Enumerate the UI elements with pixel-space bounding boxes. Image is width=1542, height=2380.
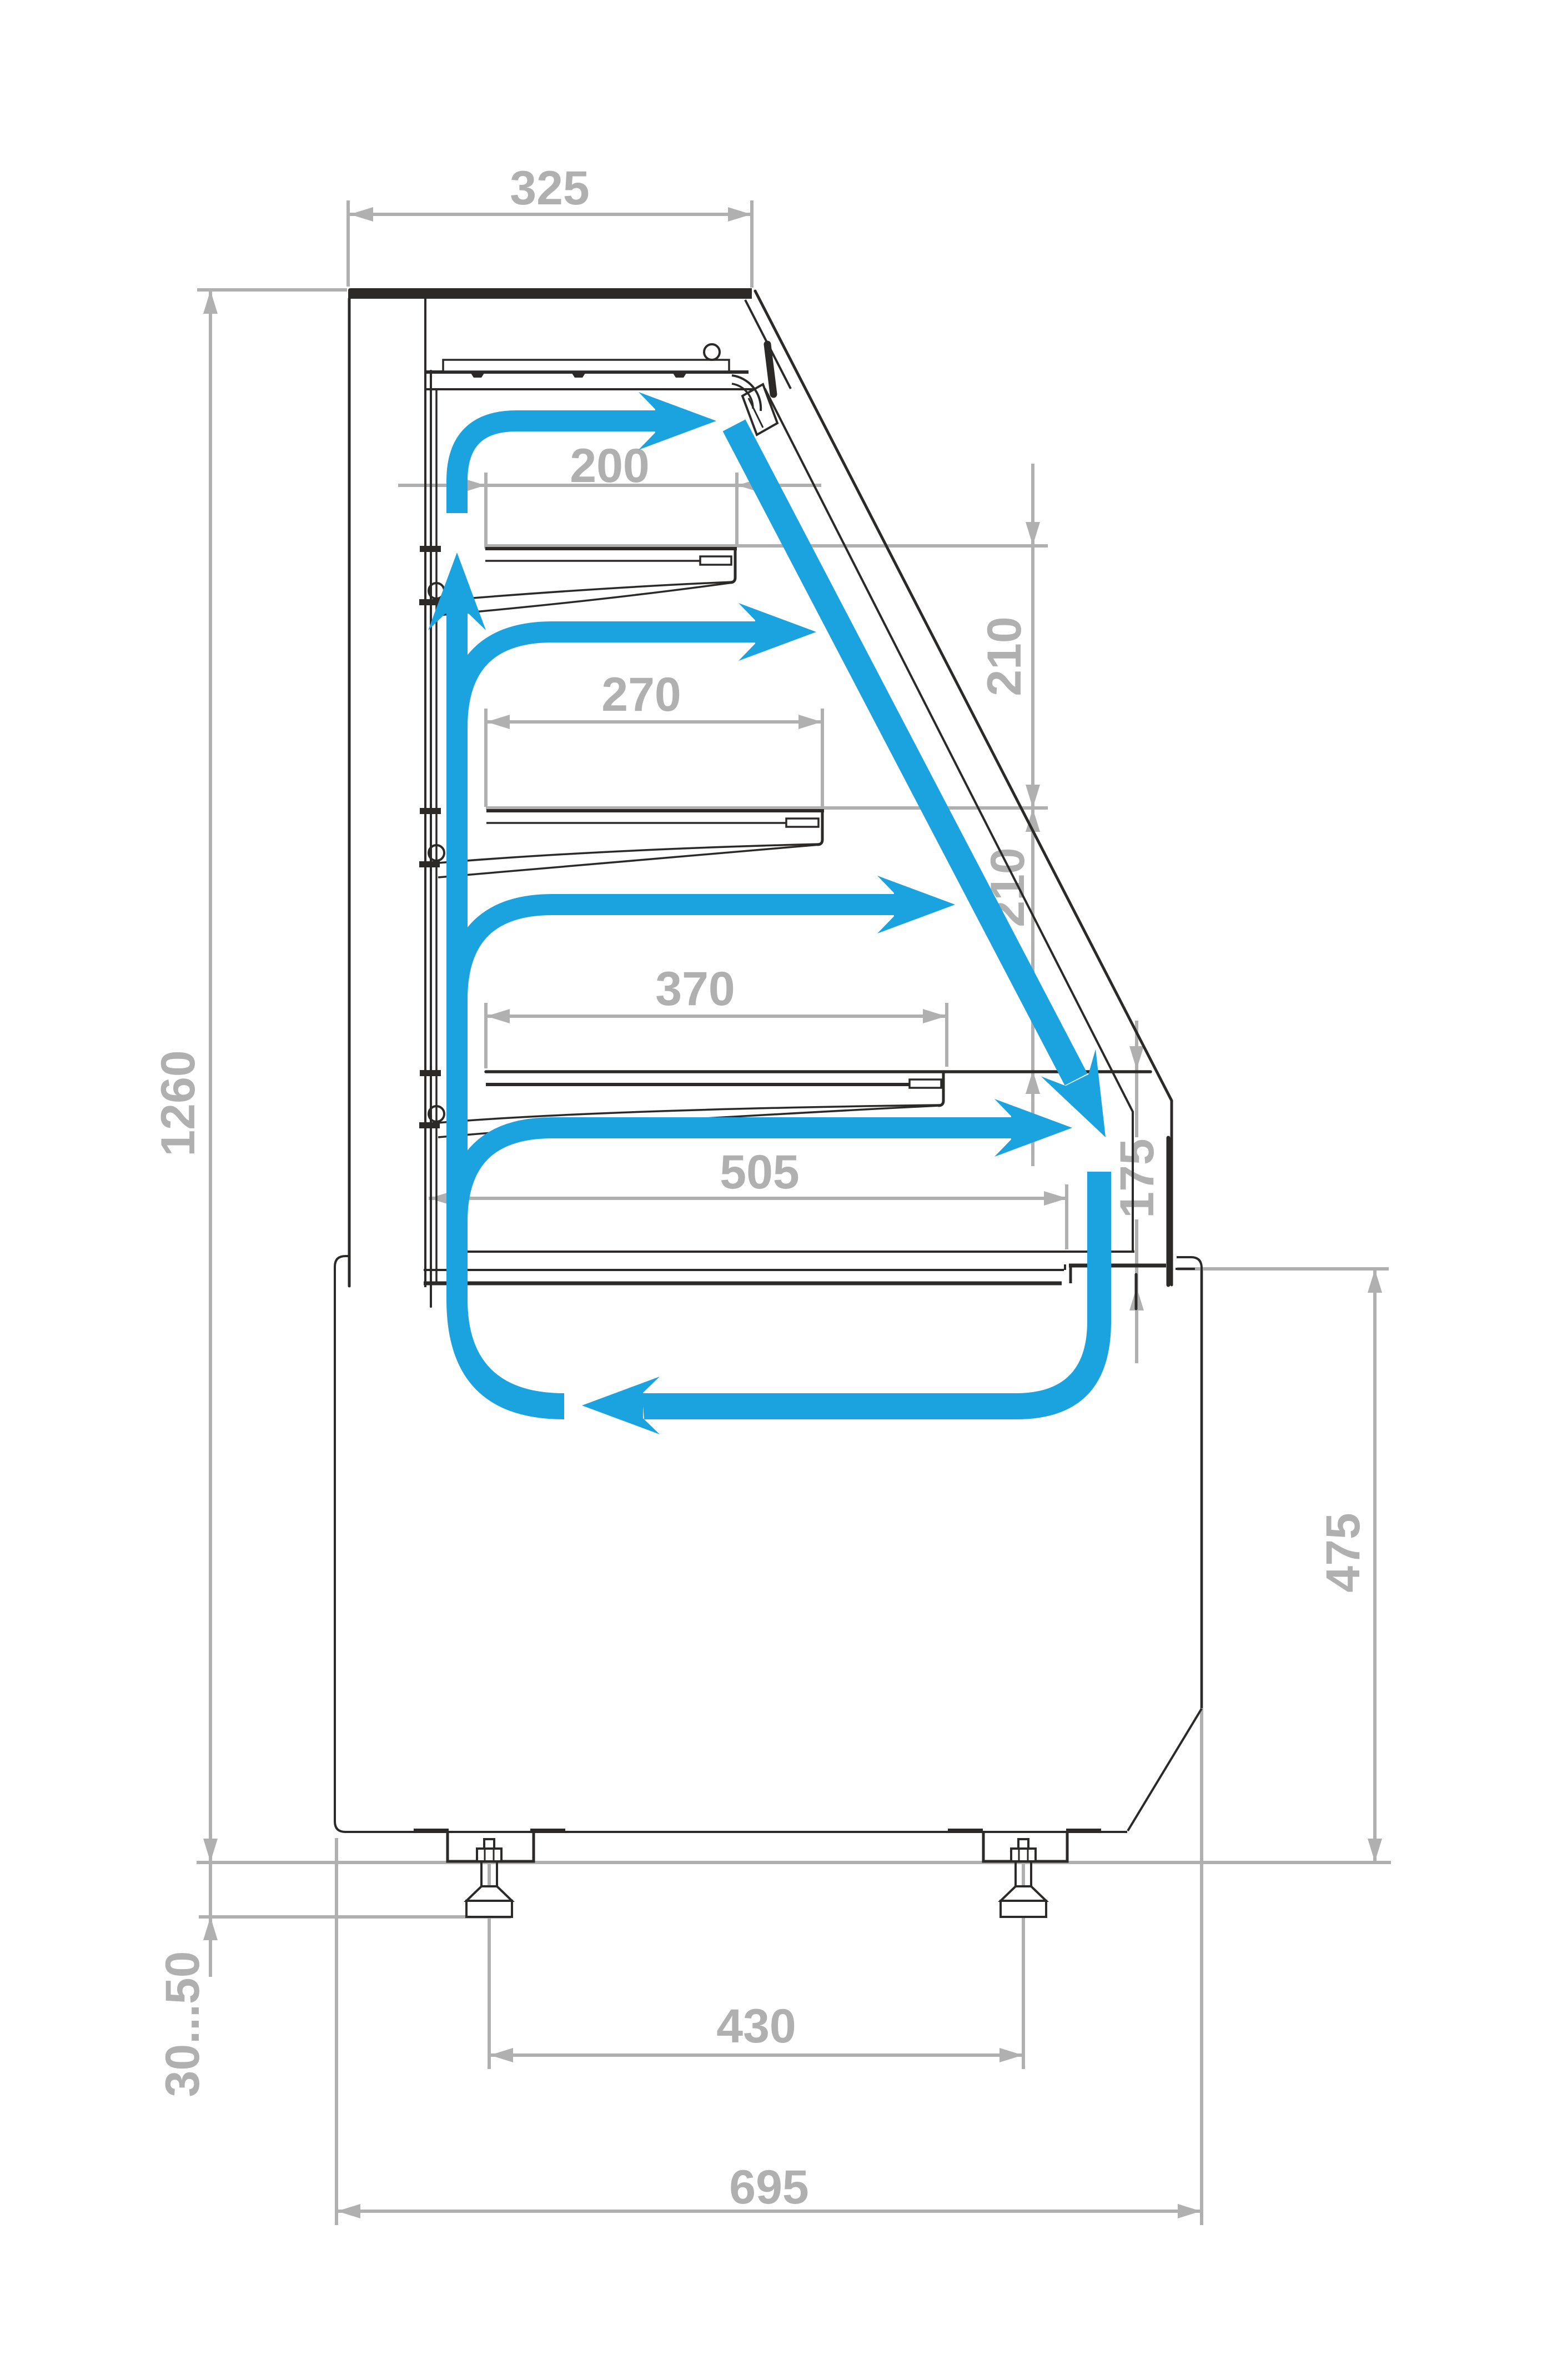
svg-text:475: 475: [1317, 1513, 1370, 1593]
svg-text:695: 695: [729, 2161, 809, 2214]
svg-text:210: 210: [978, 616, 1031, 696]
svg-text:270: 270: [601, 668, 681, 721]
svg-text:430: 430: [716, 2000, 796, 2053]
svg-text:175: 175: [1111, 1138, 1164, 1218]
svg-text:325: 325: [510, 162, 590, 215]
svg-text:200: 200: [570, 439, 650, 493]
svg-text:30...50: 30...50: [156, 1951, 209, 2097]
svg-text:1260: 1260: [152, 1050, 205, 1156]
svg-text:370: 370: [655, 962, 735, 1016]
svg-text:505: 505: [720, 1146, 800, 1199]
